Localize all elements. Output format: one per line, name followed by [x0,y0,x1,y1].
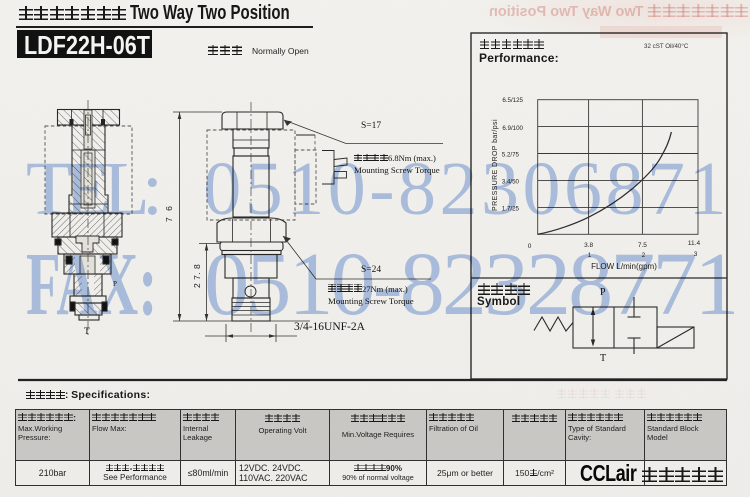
svg-text:7 6: 7 6 [164,204,174,222]
svg-text:7.5: 7.5 [638,242,647,249]
svg-text:PRESSURE DROP bar/psi: PRESSURE DROP bar/psi [492,119,499,211]
svg-text:6.9/100: 6.9/100 [502,125,523,132]
svg-text:3.4/50: 3.4/50 [502,179,520,186]
svg-text:2: 2 [642,252,646,259]
svg-text:0: 0 [528,243,532,250]
svg-text:1.7/25: 1.7/25 [502,206,520,213]
svg-text:6.5/125: 6.5/125 [502,97,523,104]
svg-text:3.8: 3.8 [584,242,593,249]
svg-text:1: 1 [588,252,592,259]
svg-text:2 7. 8: 2 7. 8 [192,264,202,288]
svg-text:FLOW L/min(gpm): FLOW L/min(gpm) [591,262,657,271]
svg-text:P: P [113,280,117,288]
svg-text:11.4: 11.4 [688,240,701,247]
svg-text:P: P [600,287,606,298]
svg-text:T: T [84,327,90,337]
svg-text:3: 3 [694,251,698,258]
svg-text:T: T [600,353,606,364]
svg-text:5.2/75: 5.2/75 [502,152,520,159]
